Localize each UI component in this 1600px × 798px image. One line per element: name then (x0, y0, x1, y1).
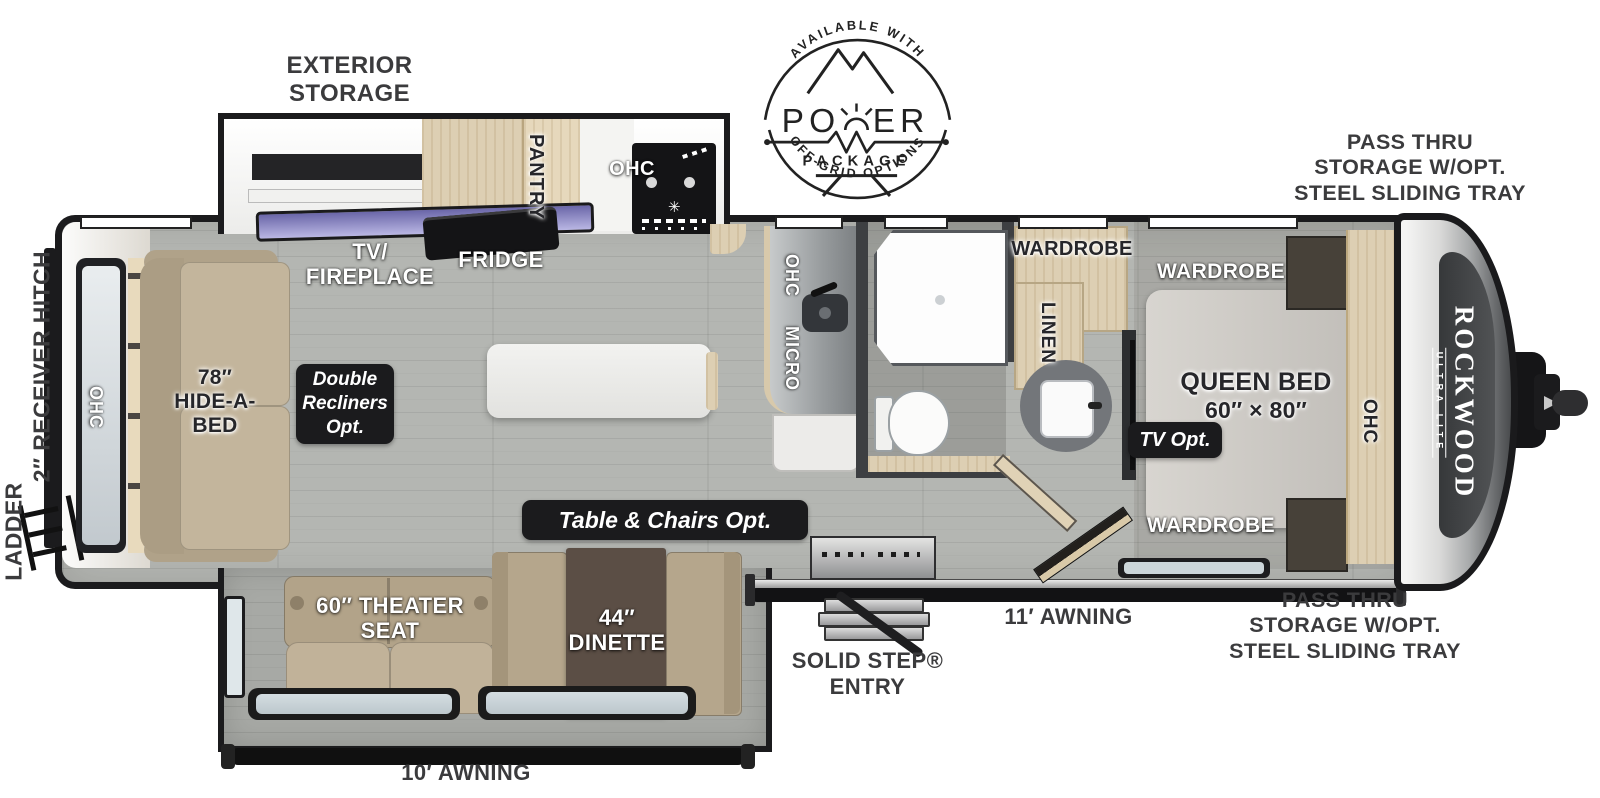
micro-label: MICRO (782, 316, 802, 400)
window-top-bedroom (1148, 216, 1298, 229)
kitchen-counter (764, 226, 866, 414)
slide-window-2 (478, 686, 696, 720)
bed-wardrobe-bottom (1286, 498, 1348, 572)
rockwood-logo: ULTRA LITE ROCKWOOD (1433, 305, 1480, 499)
rockwood-logo-tier: ULTRA LITE (1433, 347, 1447, 457)
kitchen-sink (802, 294, 848, 332)
mountains-icon (808, 50, 893, 94)
power-package-badge: AVAILABLE WITH OFF-GRID OPTIONS PO ER PA… (742, 2, 972, 200)
queen-bed-label: QUEEN BED60″ × 80″ (1168, 368, 1344, 423)
bath-wall-left (856, 222, 868, 478)
linen-label: LINEN (1036, 290, 1058, 376)
solid-step-icon (816, 594, 936, 650)
ohc-rear-label: OHC (86, 366, 106, 448)
exterior-storage-label: EXTERIORSTORAGE (262, 52, 437, 109)
theater-seat-label: 60″ THEATERSEAT (312, 594, 468, 643)
toilet (874, 390, 948, 454)
ohc-stove-label: OHC (596, 158, 668, 180)
entry-step (810, 536, 936, 580)
slide-window-1 (248, 688, 460, 720)
ladder-label: LADDER (0, 472, 27, 592)
stove: ✳ (632, 143, 716, 234)
solid-step-entry-label: SOLID STEP®ENTRY (780, 648, 955, 700)
double-recliners-badge: DoubleReclinersOpt. (296, 364, 394, 444)
floorplan-scene: AVAILABLE WITH OFF-GRID OPTIONS PO ER PA… (0, 0, 1600, 798)
wardrobe-bath-label: WARDROBE (1004, 238, 1140, 261)
rockwood-logo-name: ROCKWOOD (1449, 305, 1480, 499)
awning-cap-right (741, 744, 755, 769)
pass-thru-top-label: PASS THRUSTORAGE W/OPT.STEEL SLIDING TRA… (1278, 130, 1542, 206)
ohc-bed-label: OHC (1358, 386, 1380, 458)
awning-11-label: 11′ AWNING (986, 604, 1151, 630)
bedroom-vanity-sink (1040, 380, 1094, 438)
power-word-left: PO (782, 103, 841, 140)
slide-window-left-wall (224, 596, 245, 698)
hitch-jack-knob (1552, 390, 1588, 416)
awning-cap-left (221, 744, 235, 769)
pantry-label: PANTRY (524, 126, 547, 228)
window-top-bath (884, 216, 948, 229)
sun-icon (845, 119, 867, 130)
tv-fireplace-label: TV/FIREPLACE (294, 240, 446, 289)
ohc-counter-label: OHC (782, 246, 802, 304)
counter-lower-cabinet (772, 414, 860, 472)
window-top-kitchen (775, 216, 843, 229)
window-top-rear (80, 216, 192, 229)
pass-thru-bottom-label: PASS THRUSTORAGE W/OPT.STEEL SLIDING TRA… (1213, 588, 1477, 664)
bath-vanity-wood (868, 456, 1010, 472)
window-top-wardrobe (1018, 216, 1108, 229)
window-bottom-bedroom (1118, 558, 1270, 578)
table-chairs-badge: Table & Chairs Opt. (522, 500, 808, 540)
exterior-storage-shelf (252, 154, 434, 180)
front-cap: ULTRA LITE ROCKWOOD (1394, 213, 1518, 591)
awning-bracket-left (745, 574, 755, 606)
wardrobe-bed-top-label: WARDROBE (1146, 260, 1296, 284)
awning-10-label: 10′ AWNING (386, 760, 546, 786)
badge-package: PACKAGE (802, 153, 910, 169)
dinette-label: 44″DINETTE (560, 606, 674, 655)
shower (874, 230, 1008, 366)
power-word-right: ER (873, 103, 930, 140)
kitchen-island (487, 344, 711, 418)
hide-a-bed-label: 78″HIDE-A-BED (150, 366, 280, 438)
receiver-hitch-label: 2″ RECEIVER HITCH (28, 237, 55, 497)
wardrobe-bed-bottom-label: WARDROBE (1136, 514, 1286, 538)
fridge-label: FRIDGE (436, 248, 566, 273)
tv-opt-badge: TV Opt. (1128, 422, 1222, 458)
